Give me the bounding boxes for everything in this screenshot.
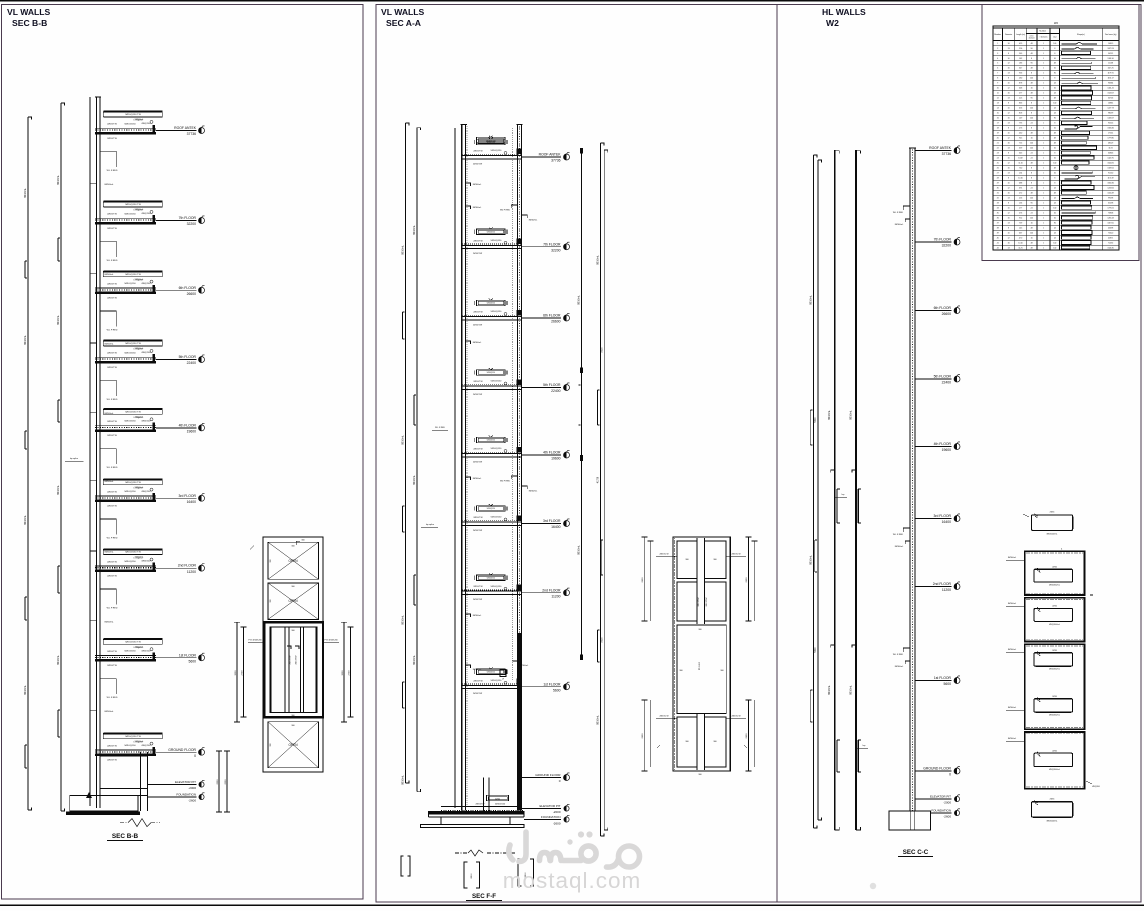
svg-text:1: 1 — [1043, 232, 1044, 234]
svg-text:5Ø16@150: 5Ø16@150 — [491, 150, 503, 152]
svg-text:8Ø16/mL: 8Ø16/mL — [895, 224, 904, 226]
svg-text:24: 24 — [1054, 227, 1056, 229]
svg-text:980.99: 980.99 — [1108, 113, 1113, 115]
svg-text:2.65: 2.65 — [1019, 53, 1022, 55]
svg-text:12: 12 — [1008, 187, 1010, 189]
svg-text:7th FLOOR: 7th FLOOR — [543, 242, 561, 246]
svg-text:5Ø16@150: 5Ø16@150 — [487, 440, 495, 442]
svg-text:1: 1 — [1043, 202, 1044, 204]
svg-text:8: 8 — [1008, 103, 1009, 105]
svg-text:Ø8@200/mL: Ø8@200/mL — [1049, 669, 1060, 671]
svg-text:8Ø16/mL: 8Ø16/mL — [58, 175, 60, 185]
svg-text:2Ø16: 2Ø16 — [1052, 696, 1057, 698]
svg-text:4th FLOOR: 4th FLOOR — [543, 451, 561, 455]
svg-text:16: 16 — [1054, 68, 1056, 70]
svg-text:41: 41 — [997, 242, 999, 244]
svg-text:5Ø16@150: 5Ø16@150 — [491, 517, 503, 519]
svg-text:1: 1 — [1043, 197, 1044, 199]
svg-text:16: 16 — [1054, 212, 1056, 214]
svg-text:1117.25: 1117.25 — [1108, 68, 1114, 70]
svg-text:39: 39 — [997, 232, 999, 234]
svg-text:W.L F RED: W.L F RED — [435, 427, 445, 429]
svg-text:12: 12 — [1008, 113, 1010, 115]
svg-text:8Ø16/mL: 8Ø16/mL — [579, 295, 581, 305]
svg-text:2Ø16/T.W: 2Ø16/T.W — [107, 561, 118, 563]
svg-text:2.56: 2.56 — [1019, 48, 1022, 50]
svg-text:96: 96 — [1031, 48, 1033, 50]
svg-text:12: 12 — [1008, 138, 1010, 140]
svg-text:990.98: 990.98 — [1108, 197, 1113, 199]
svg-text:16: 16 — [1008, 93, 1010, 95]
svg-text:8Ø16/mL: 8Ø16/mL — [105, 184, 115, 186]
svg-text:406.98: 406.98 — [1108, 227, 1113, 229]
svg-text:48: 48 — [1031, 83, 1033, 85]
svg-text:8: 8 — [1008, 78, 1009, 80]
svg-text:5Ø16@150: 5Ø16@150 — [491, 240, 503, 242]
svg-text:2Ø16/T.W: 2Ø16/T.W — [473, 449, 482, 451]
svg-text:Ø8@200/mL: Ø8@200/mL — [1047, 534, 1058, 536]
svg-text:1: 1 — [1043, 143, 1044, 145]
svg-text:32: 32 — [997, 197, 999, 199]
svg-text:4th FLOOR: 4th FLOOR — [179, 424, 197, 428]
svg-text:8Ø16/mL: 8Ø16/mL — [105, 711, 115, 713]
svg-text:2Ø16/T.W: 2Ø16/T.W — [473, 530, 482, 532]
svg-text:15: 15 — [997, 113, 999, 115]
svg-text:5Ø16@150: 5Ø16@150 — [124, 561, 136, 563]
svg-text:2Ø16/T.W: 2Ø16/T.W — [107, 760, 118, 762]
svg-text:1243.56: 1243.56 — [1108, 187, 1114, 189]
svg-text:Ø8@200: Ø8@200 — [142, 745, 152, 747]
svg-text:ROOF ANTEK: ROOF ANTEK — [174, 126, 197, 130]
svg-text:16400: 16400 — [187, 500, 197, 504]
svg-text:1: 1 — [1043, 177, 1044, 179]
svg-text:5Ø16@150: 5Ø16@150 — [487, 577, 495, 579]
svg-text:2: 2 — [997, 48, 998, 50]
svg-text:2Ø13/T.W: 2Ø13/T.W — [290, 655, 292, 664]
svg-text:3000: 3000 — [342, 670, 344, 676]
svg-text:1165.17: 1165.17 — [1108, 78, 1114, 80]
svg-text:5Ø16@150: 5Ø16@150 — [124, 283, 136, 285]
svg-text:347.53: 347.53 — [1108, 98, 1113, 100]
svg-text:2Ø16/T.W: 2Ø16/T.W — [107, 353, 118, 355]
svg-text:3.43: 3.43 — [1019, 153, 1022, 155]
svg-text:2Ø16/T.W: 2Ø16/T.W — [473, 517, 482, 519]
svg-text:W2 F RED: W2 F RED — [500, 210, 510, 212]
svg-text:8Ø16/mL: 8Ø16/mL — [25, 515, 27, 525]
svg-text:8: 8 — [997, 78, 998, 80]
svg-text:2Ø16/T.W: 2Ø16/T.W — [107, 421, 118, 423]
svg-text:2Ø16/T.W: 2Ø16/T.W — [473, 599, 482, 601]
svg-text:7th FLOOR: 7th FLOOR — [179, 216, 197, 220]
svg-text:SEC F-F: SEC F-F — [472, 893, 496, 900]
svg-text:38: 38 — [997, 227, 999, 229]
svg-text:1405.67: 1405.67 — [1108, 118, 1114, 120]
svg-text:16: 16 — [997, 118, 999, 120]
svg-text:8: 8 — [1008, 227, 1009, 229]
svg-text:W2: W2 — [826, 18, 839, 28]
svg-text:16400: 16400 — [942, 520, 952, 524]
svg-text:2Ø16: 2Ø16 — [1050, 512, 1055, 514]
svg-text:2nd FLOOR: 2nd FLOOR — [178, 564, 197, 568]
svg-text:12: 12 — [997, 98, 999, 100]
svg-text:34.72: 34.72 — [1108, 148, 1112, 150]
svg-text:140: 140 — [1030, 78, 1033, 80]
svg-text:5Ø16@150 T.W: 5Ø16@150 T.W — [125, 114, 141, 116]
svg-text:48: 48 — [1054, 98, 1056, 100]
svg-text:48: 48 — [1031, 163, 1033, 165]
svg-text:2Ø16/T.W: 2Ø16/T.W — [107, 435, 118, 437]
svg-text:2Ø16/T.W: 2Ø16/T.W — [473, 461, 482, 463]
svg-text:8: 8 — [1054, 78, 1055, 80]
svg-text:5: 5 — [997, 63, 998, 65]
svg-text:3rd FLOOR: 3rd FLOOR — [933, 514, 951, 518]
svg-text:HL WALLS: HL WALLS — [822, 7, 866, 17]
svg-text:-2600: -2600 — [943, 814, 951, 818]
svg-text:OPEN: OPEN — [288, 559, 298, 563]
svg-text:37736: 37736 — [551, 159, 561, 163]
svg-text:W.L F RED: W.L F RED — [107, 330, 118, 332]
svg-text:0: 0 — [559, 779, 561, 783]
svg-text:16: 16 — [1054, 88, 1056, 90]
svg-text:8: 8 — [1008, 202, 1009, 204]
svg-text:1: 1 — [1043, 73, 1044, 75]
svg-text:7th FLOOR: 7th FLOOR — [934, 238, 952, 242]
svg-text:8Ø16/mL: 8Ø16/mL — [414, 225, 416, 235]
svg-text:16: 16 — [1031, 237, 1033, 239]
svg-text:16: 16 — [1031, 138, 1033, 140]
svg-text:SEC A-A: SEC A-A — [386, 18, 421, 28]
svg-text:SEC B-B: SEC B-B — [12, 18, 47, 28]
svg-text:13: 13 — [1008, 73, 1010, 75]
svg-text:16: 16 — [1008, 192, 1010, 194]
svg-text:4: 4 — [997, 58, 998, 60]
svg-text:33: 33 — [997, 202, 999, 204]
svg-text:1: 1 — [1043, 227, 1044, 229]
svg-text:8Ø16/mL: 8Ø16/mL — [473, 478, 482, 480]
svg-text:GROUND FLOOR: GROUND FLOOR — [168, 748, 196, 752]
svg-text:1309.61: 1309.61 — [1108, 167, 1114, 169]
svg-text:19600: 19600 — [187, 430, 197, 434]
svg-text:5Ø16@150: 5Ø16@150 — [124, 651, 136, 653]
svg-text:FOUNDATION: FOUNDATION — [931, 809, 951, 813]
svg-text:W.L F RED: W.L F RED — [893, 212, 904, 214]
svg-text:2Ø13/T.W: 2Ø13/T.W — [698, 597, 700, 606]
svg-text:2Ø16/T.W: 2Ø16/T.W — [107, 665, 118, 667]
svg-text:8: 8 — [1054, 123, 1055, 125]
svg-text:140: 140 — [1053, 103, 1056, 105]
svg-text:5Ø16@150: 5Ø16@150 — [491, 448, 503, 450]
svg-text:2.80: 2.80 — [1019, 78, 1022, 80]
svg-text:5Ø16@150: 5Ø16@150 — [124, 491, 136, 493]
svg-text:140: 140 — [1030, 118, 1033, 120]
svg-text:24: 24 — [1054, 237, 1056, 239]
svg-text:10.16: 10.16 — [1018, 177, 1022, 179]
svg-text:8Ø16/mL: 8Ø16/mL — [403, 775, 405, 785]
svg-text:10: 10 — [1008, 182, 1010, 184]
svg-text:2Ø13/L.W: 2Ø13/L.W — [659, 716, 668, 718]
svg-text:2.53: 2.53 — [1019, 197, 1022, 199]
svg-text:1st FLOOR: 1st FLOOR — [934, 676, 952, 680]
svg-text:8: 8 — [1054, 48, 1055, 50]
svg-text:VL WALLS: VL WALLS — [7, 7, 51, 17]
svg-text:L.t.legend: L.t.legend — [134, 646, 143, 649]
svg-text:96: 96 — [1054, 222, 1056, 224]
svg-text:8: 8 — [1031, 182, 1032, 184]
svg-text:428.71: 428.71 — [1108, 237, 1113, 239]
svg-text:1: 1 — [1043, 123, 1044, 125]
svg-text:8Ø16/mL: 8Ø16/mL — [529, 220, 538, 222]
svg-text:2Ø16/T.W: 2Ø16/T.W — [473, 693, 482, 695]
svg-text:8Ø16/mL: 8Ø16/mL — [829, 410, 831, 420]
svg-text:6.88: 6.88 — [1019, 182, 1022, 184]
svg-text:W.L F RED: W.L F RED — [893, 654, 904, 656]
svg-text:8Ø16/mL: 8Ø16/mL — [403, 615, 405, 625]
svg-text:2nd FLOOR: 2nd FLOOR — [933, 582, 952, 586]
svg-text:24: 24 — [1031, 187, 1033, 189]
svg-text:10.82: 10.82 — [1018, 158, 1022, 160]
svg-text:8Ø16/mL: 8Ø16/mL — [105, 481, 115, 483]
svg-text:29: 29 — [997, 182, 999, 184]
svg-text:9.52: 9.52 — [1019, 217, 1022, 219]
svg-text:2Ø16: 2Ø16 — [1052, 606, 1057, 608]
svg-text:6.67: 6.67 — [1019, 232, 1022, 234]
svg-text:Number: Number — [1039, 30, 1046, 33]
svg-text:2Ø16: 2Ø16 — [1052, 566, 1057, 568]
svg-text:8Ø16/mL: 8Ø16/mL — [58, 655, 60, 665]
svg-text:27: 27 — [997, 172, 999, 174]
svg-text:1: 1 — [1043, 167, 1044, 169]
svg-text:96: 96 — [1031, 98, 1033, 100]
svg-text:1873.74: 1873.74 — [1108, 48, 1114, 50]
svg-text:16: 16 — [1054, 128, 1056, 130]
svg-text:10: 10 — [997, 88, 999, 90]
svg-text:32200: 32200 — [187, 222, 197, 226]
svg-text:48: 48 — [1031, 242, 1033, 244]
svg-text:2.73: 2.73 — [1019, 128, 1022, 130]
svg-text:6th FLOOR: 6th FLOOR — [179, 286, 197, 290]
svg-text:Ø8@200: Ø8@200 — [142, 650, 152, 652]
svg-text:L.t.legend: L.t.legend — [134, 209, 143, 212]
svg-text:8: 8 — [1031, 103, 1032, 105]
svg-text:26600: 26600 — [187, 292, 197, 296]
svg-text:8Ø16/mL: 8Ø16/mL — [25, 335, 27, 345]
svg-text:24: 24 — [1031, 207, 1033, 209]
svg-text:1424.75: 1424.75 — [1108, 158, 1114, 160]
svg-text:5Ø16@150: 5Ø16@150 — [487, 372, 495, 374]
svg-text:8Ø16/mL: 8Ø16/mL — [1008, 738, 1017, 740]
svg-text:5th FLOOR: 5th FLOOR — [543, 383, 561, 387]
svg-text:16: 16 — [1031, 88, 1033, 90]
svg-text:1: 1 — [1043, 48, 1044, 50]
svg-text:5Ø16@150 T.W: 5Ø16@150 T.W — [125, 552, 141, 554]
svg-text:ELEVATOR PIT: ELEVATOR PIT — [175, 780, 196, 784]
svg-text:FOUNDATION: FOUNDATION — [176, 793, 196, 797]
svg-text:1: 1 — [1043, 93, 1044, 95]
svg-text:11.16: 11.16 — [1018, 163, 1022, 165]
svg-text:1227.73: 1227.73 — [1108, 108, 1114, 110]
svg-text:912.30: 912.30 — [1108, 172, 1113, 174]
svg-text:lap splice: lap splice — [426, 524, 435, 526]
svg-text:32200: 32200 — [551, 248, 561, 252]
svg-text:22400: 22400 — [942, 381, 952, 385]
svg-text:1: 1 — [1043, 192, 1044, 194]
svg-text:25: 25 — [997, 163, 999, 165]
svg-text:1.45: 1.45 — [1019, 227, 1022, 229]
svg-text:48: 48 — [1031, 133, 1033, 135]
svg-text:GROUND FLOOR: GROUND FLOOR — [923, 767, 951, 771]
svg-text:Ø8@200: Ø8@200 — [142, 491, 152, 493]
svg-text:1: 1 — [1043, 237, 1044, 239]
svg-text:1: 1 — [1043, 172, 1044, 174]
svg-text:24: 24 — [1054, 83, 1056, 85]
svg-text:8: 8 — [1031, 172, 1032, 174]
svg-text:2400: 2400 — [642, 577, 644, 583]
svg-text:1019.55: 1019.55 — [1108, 222, 1114, 224]
svg-text:-2000: -2000 — [553, 810, 561, 814]
svg-text:5600: 5600 — [815, 417, 817, 423]
svg-text:6.48: 6.48 — [1019, 88, 1022, 90]
svg-text:5Ø16@150: 5Ø16@150 — [486, 141, 496, 143]
svg-text:11200: 11200 — [942, 588, 951, 592]
svg-text:L.t.legend: L.t.legend — [134, 348, 143, 351]
svg-text:2Ø16/T.W: 2Ø16/T.W — [107, 367, 118, 369]
svg-text:2700: 2700 — [242, 670, 244, 676]
svg-text:24: 24 — [1054, 232, 1056, 234]
svg-text:Total mass (kg): Total mass (kg) — [1105, 33, 1117, 36]
svg-text:48: 48 — [1031, 93, 1033, 95]
svg-text:4th FLOOR: 4th FLOOR — [934, 442, 952, 446]
svg-text:1: 1 — [1043, 148, 1044, 150]
svg-text:8Ø16/mL: 8Ø16/mL — [414, 655, 416, 665]
svg-text:140: 140 — [1030, 217, 1033, 219]
svg-text:8: 8 — [1054, 182, 1055, 184]
svg-text:8: 8 — [1031, 167, 1032, 169]
svg-text:2Ø13/L.W: 2Ø13/L.W — [659, 554, 668, 556]
svg-text:5Ø16@150: 5Ø16@150 — [495, 804, 506, 806]
svg-text:16: 16 — [1054, 158, 1056, 160]
svg-text:8Ø16/mL: 8Ø16/mL — [105, 621, 115, 623]
svg-text:24: 24 — [1054, 113, 1056, 115]
svg-text:1179.91: 1179.91 — [1108, 73, 1114, 75]
svg-text:W2 F RED: W2 F RED — [500, 481, 510, 483]
svg-text:16: 16 — [1008, 118, 1010, 120]
svg-text:1: 1 — [1043, 158, 1044, 160]
svg-text:37736: 37736 — [187, 132, 197, 136]
svg-text:3000: 3000 — [235, 670, 237, 676]
svg-text:18: 18 — [997, 128, 999, 130]
svg-text:28: 28 — [997, 177, 999, 179]
svg-text:PT.6 Ø13/1200: PT.6 Ø13/1200 — [324, 640, 338, 642]
svg-text:8Ø16/mL: 8Ø16/mL — [811, 295, 813, 305]
svg-text:W.L F RED: W.L F RED — [107, 697, 118, 699]
svg-text:108.19: 108.19 — [1108, 43, 1113, 45]
svg-text:10: 10 — [1008, 83, 1010, 85]
svg-text:16: 16 — [1008, 68, 1010, 70]
svg-text:L.t.legend: L.t.legend — [134, 119, 143, 122]
svg-text:2400: 2400 — [642, 733, 644, 739]
svg-text:7.60: 7.60 — [1019, 167, 1022, 169]
svg-text:21: 21 — [997, 143, 999, 145]
svg-text:40: 40 — [997, 237, 999, 239]
svg-text:5Ø16@150: 5Ø16@150 — [491, 311, 503, 313]
svg-text:2Ø13/L.W: 2Ø13/L.W — [731, 554, 740, 556]
svg-text:1: 1 — [1043, 88, 1044, 90]
svg-text:Ø8@200: Ø8@200 — [142, 123, 152, 125]
svg-text:5Ø16@150 T.W: 5Ø16@150 T.W — [125, 343, 141, 345]
svg-text:10: 10 — [1008, 158, 1010, 160]
svg-text:2Ø16/T.W: 2Ø16/T.W — [473, 163, 482, 165]
svg-text:-2000: -2000 — [188, 786, 196, 790]
svg-text:48: 48 — [1031, 68, 1033, 70]
svg-text:16: 16 — [1008, 217, 1010, 219]
svg-text:48: 48 — [1031, 43, 1033, 45]
svg-text:5Ø16@150: 5Ø16@150 — [491, 381, 503, 383]
svg-text:12: 12 — [1008, 212, 1010, 214]
svg-text:5th FLOOR: 5th FLOOR — [934, 375, 952, 379]
svg-text:GROUND FLOOR: GROUND FLOOR — [535, 773, 561, 777]
svg-text:5Ø16@150: 5Ø16@150 — [124, 123, 136, 125]
svg-text:5.76: 5.76 — [1019, 212, 1022, 214]
svg-text:140: 140 — [1030, 143, 1033, 145]
svg-text:4.60: 4.60 — [1019, 133, 1022, 135]
svg-text:31: 31 — [997, 192, 999, 194]
svg-text:12: 12 — [1008, 163, 1010, 165]
svg-text:Ø8@200/mL: Ø8@200/mL — [1049, 769, 1060, 771]
svg-text:24: 24 — [1031, 123, 1033, 125]
svg-text:10.10: 10.10 — [1018, 242, 1022, 244]
svg-text:8Ø16/mL: 8Ø16/mL — [58, 315, 60, 325]
svg-text:8.78: 8.78 — [1019, 83, 1022, 85]
svg-text:10: 10 — [1008, 207, 1010, 209]
svg-text:963.84: 963.84 — [1108, 83, 1113, 85]
svg-text:Ø8@200/mL: Ø8@200/mL — [1047, 820, 1058, 822]
svg-text:2Ø16/T.W: 2Ø16/T.W — [473, 394, 482, 396]
svg-text:2Ø16/T.W: 2Ø16/T.W — [473, 324, 482, 326]
svg-text:756.20: 756.20 — [1108, 232, 1113, 234]
svg-text:8Ø16/mL: 8Ø16/mL — [414, 475, 416, 485]
svg-text:8Ø16/mL: 8Ø16/mL — [1008, 557, 1017, 559]
svg-text:1: 1 — [1043, 58, 1044, 60]
svg-text:8: 8 — [1054, 53, 1055, 55]
svg-text:Member: Member — [994, 34, 1001, 36]
svg-text:13: 13 — [1008, 197, 1010, 199]
svg-text:1.49: 1.49 — [1019, 118, 1022, 120]
svg-text:23: 23 — [997, 153, 999, 155]
svg-text:96: 96 — [1054, 73, 1056, 75]
svg-text:140: 140 — [1053, 247, 1056, 249]
svg-text:6: 6 — [997, 68, 998, 70]
svg-text:2Ø16/T.W: 2Ø16/T.W — [107, 283, 118, 285]
svg-text:168.81: 168.81 — [1108, 103, 1113, 105]
svg-text:2Ø16: 2Ø16 — [1050, 798, 1055, 800]
svg-text:140: 140 — [1030, 148, 1033, 150]
svg-text:1: 1 — [1043, 153, 1044, 155]
svg-text:5.77: 5.77 — [1019, 93, 1022, 95]
svg-text:8Ø16/mL: 8Ø16/mL — [473, 615, 482, 617]
svg-text:5Ø16: 5Ø16 — [495, 798, 500, 800]
svg-text:8Ø16/mL: 8Ø16/mL — [25, 685, 27, 695]
svg-text:L.t.legend: L.t.legend — [134, 416, 143, 419]
svg-text:1: 1 — [1043, 103, 1044, 105]
svg-text:5Ø16@150: 5Ø16@150 — [124, 421, 136, 423]
svg-text:19600: 19600 — [942, 448, 952, 452]
svg-text:24: 24 — [1054, 187, 1056, 189]
svg-text:48: 48 — [1054, 63, 1056, 65]
svg-text:Ø8@200/mL: Ø8@200/mL — [1049, 624, 1060, 626]
svg-text:13: 13 — [1008, 148, 1010, 150]
svg-text:13: 13 — [997, 103, 999, 105]
svg-text:1.36: 1.36 — [1019, 202, 1022, 204]
